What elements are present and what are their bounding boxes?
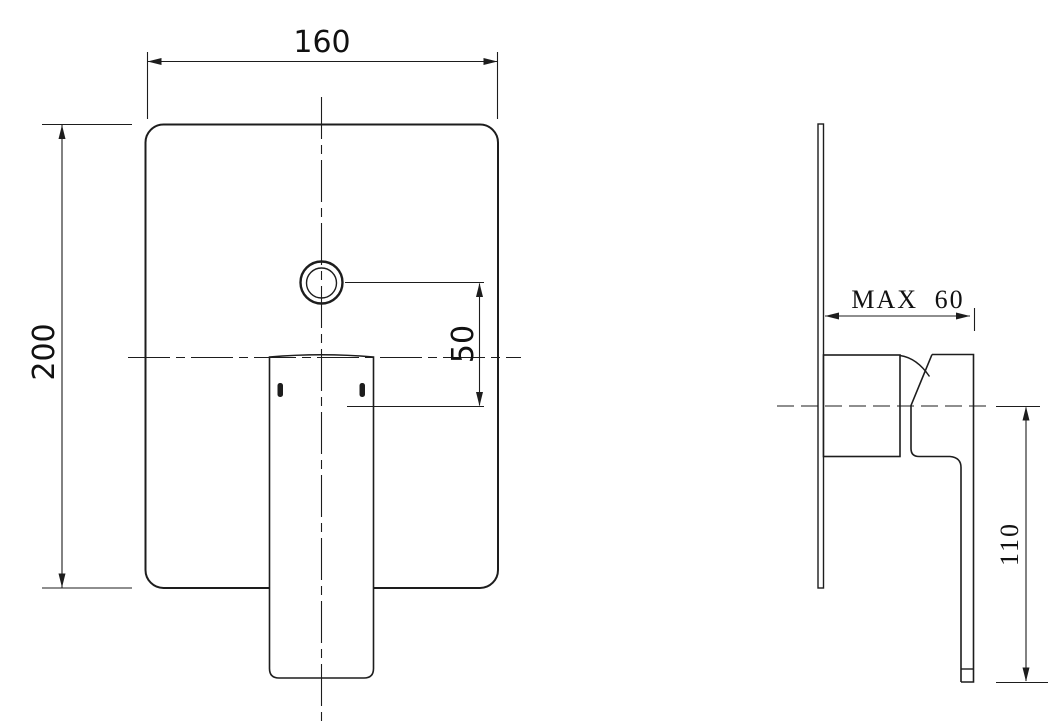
arrowhead-bottom bbox=[59, 574, 66, 588]
dim-label-depth: MAX 60 bbox=[851, 285, 964, 314]
dim-label-hole-offset: 50 bbox=[446, 325, 481, 363]
arrowhead-top bbox=[59, 125, 66, 139]
dim-max-depth: MAX 60 bbox=[825, 285, 975, 331]
arrowhead-left bbox=[825, 313, 839, 320]
arrowhead-right bbox=[484, 58, 498, 65]
dim-plate-height: 200 bbox=[27, 125, 132, 589]
arrowhead-left bbox=[148, 58, 162, 65]
side-plate-outline bbox=[818, 124, 824, 588]
side-view: MAX 60 110 bbox=[777, 124, 1048, 683]
arrowhead-bottom bbox=[1023, 668, 1030, 682]
dim-plate-width: 160 bbox=[148, 25, 498, 119]
dim-label-handle-length: 110 bbox=[995, 522, 1024, 566]
dim-handle-length: 110 bbox=[995, 407, 1048, 683]
handle-side-contour bbox=[911, 355, 961, 683]
handle-grip-outline bbox=[932, 355, 974, 683]
front-view: 160 200 50 bbox=[27, 25, 521, 722]
arrowhead-top bbox=[1023, 407, 1030, 421]
dim-label-height: 200 bbox=[27, 323, 62, 380]
drawing-canvas: 160 200 50 bbox=[0, 0, 1059, 728]
handle-mark-left bbox=[278, 383, 284, 397]
dim-label-width: 160 bbox=[293, 25, 350, 60]
technical-drawing: 160 200 50 bbox=[0, 0, 1059, 728]
handle-mark-right bbox=[360, 383, 366, 397]
